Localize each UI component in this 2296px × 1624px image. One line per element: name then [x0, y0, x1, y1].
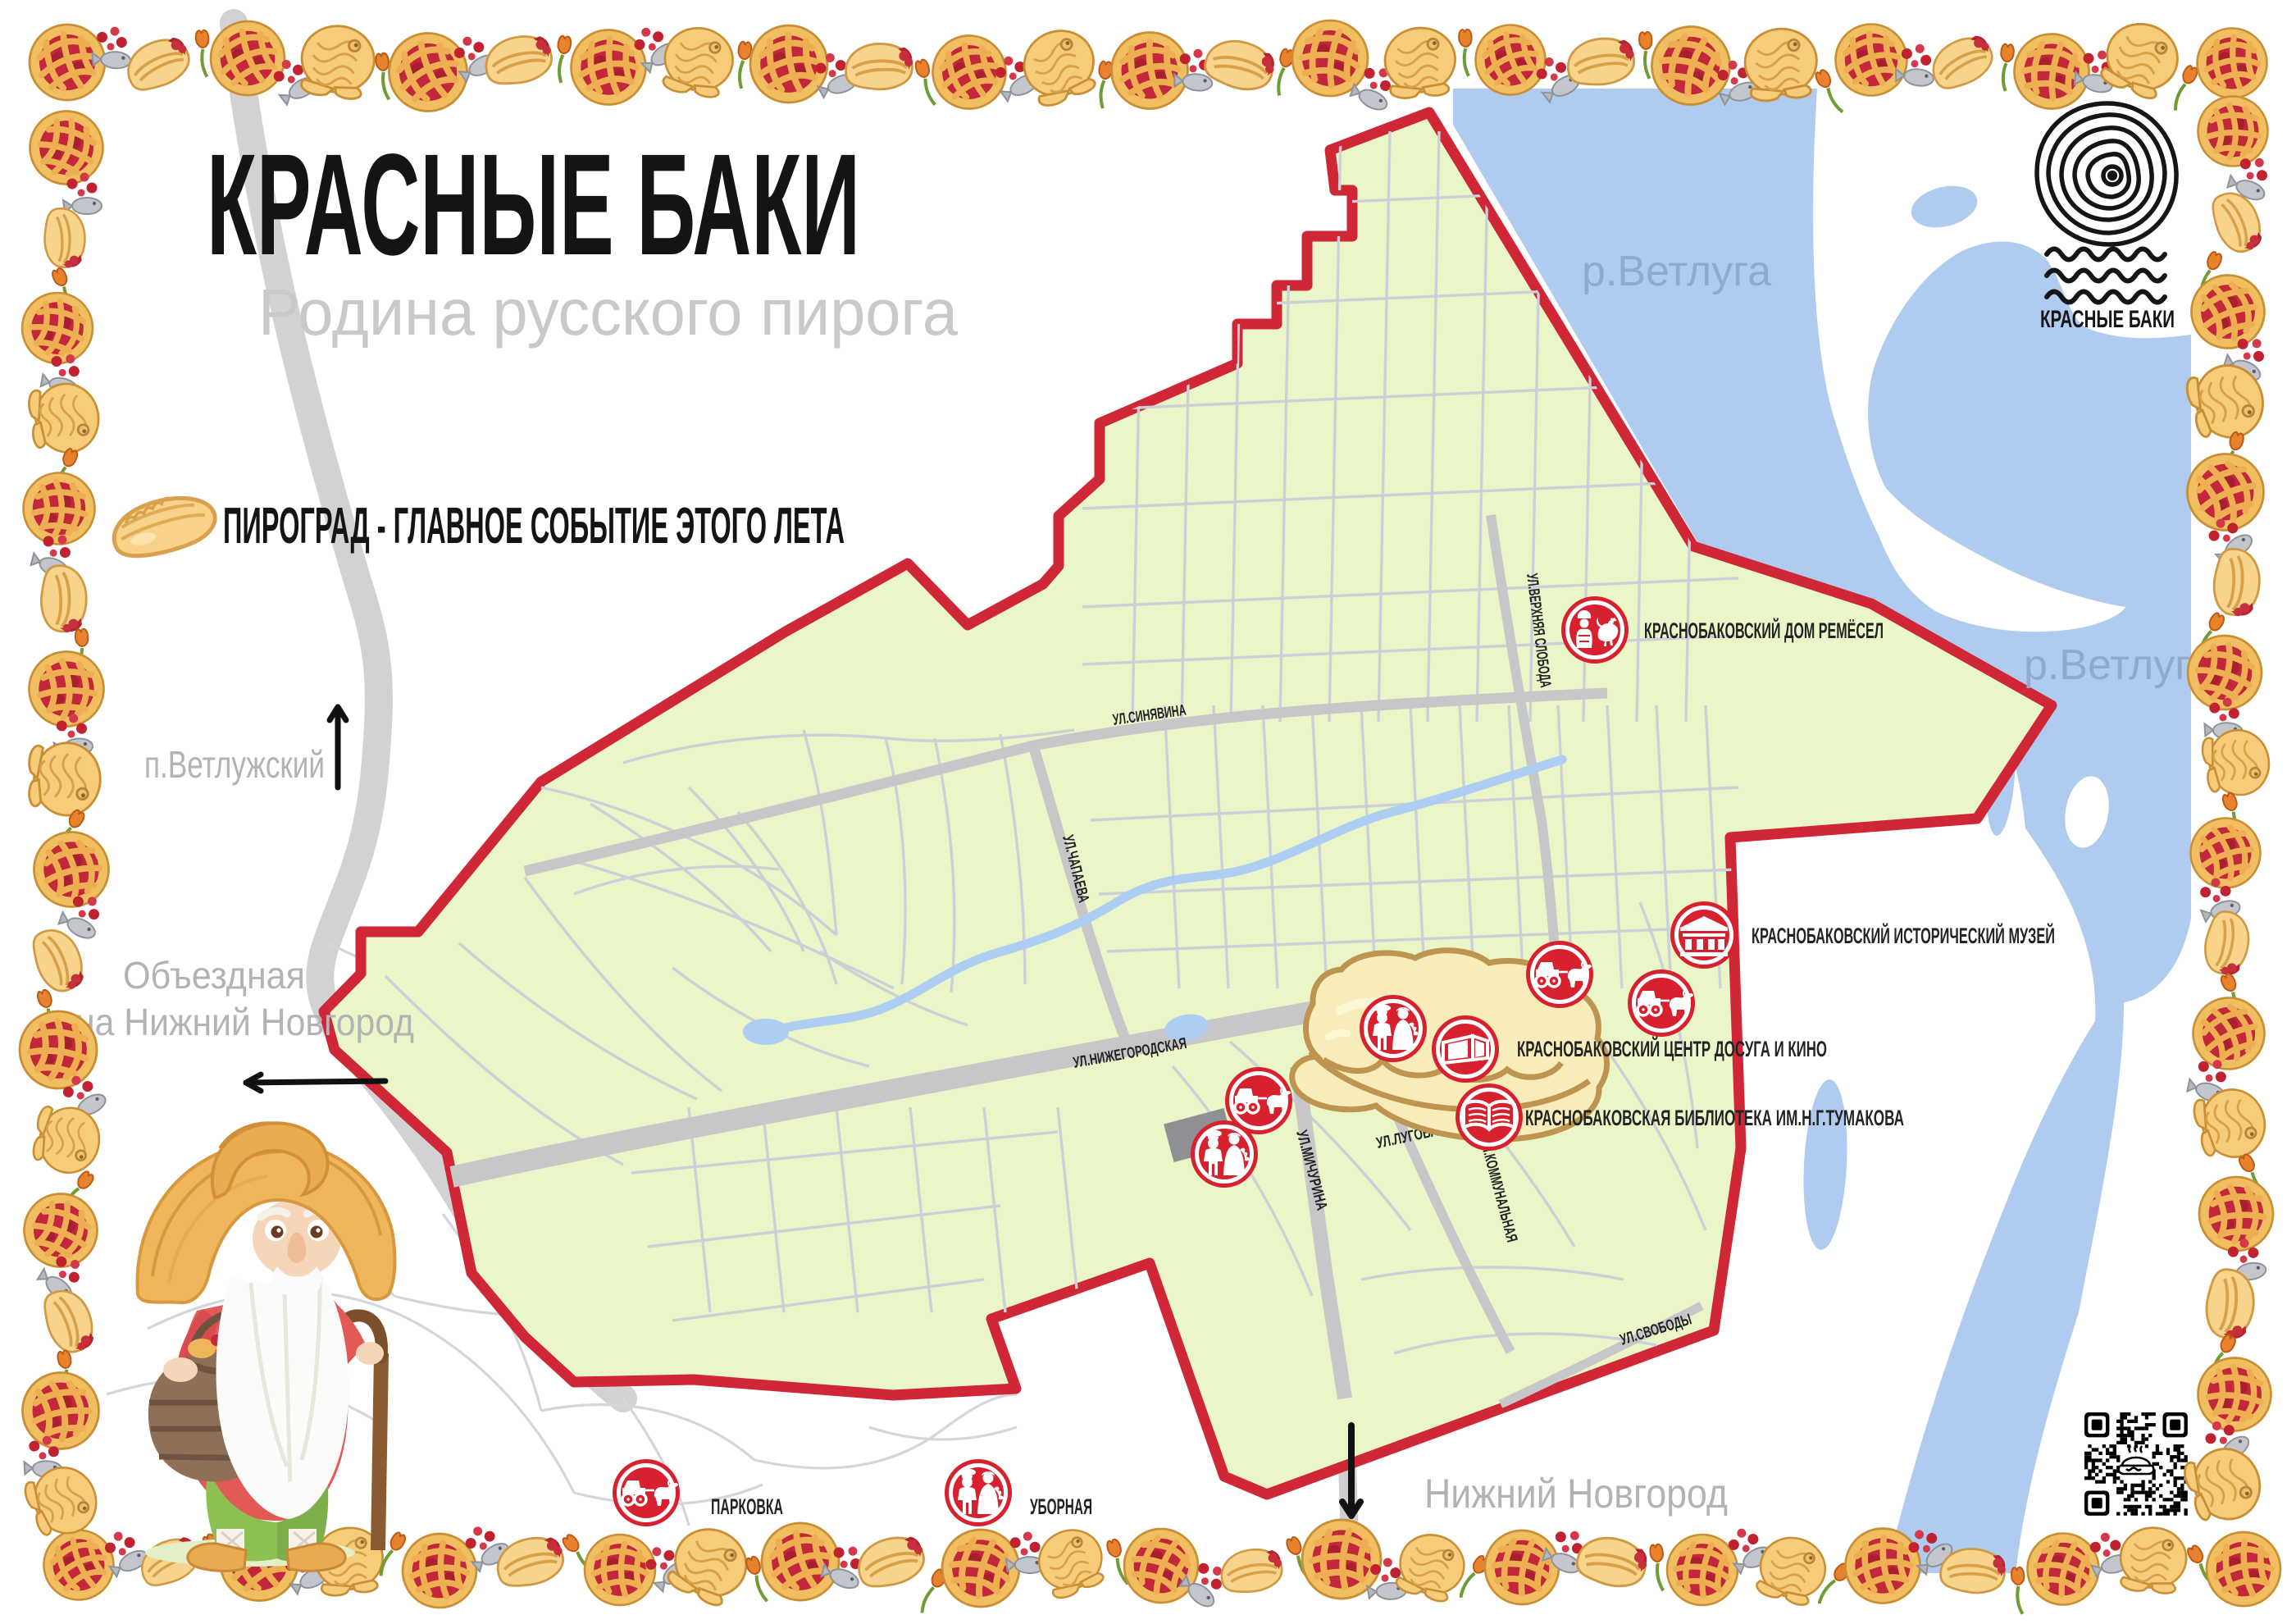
svg-text:КРАСНЫЕ БАКИ: КРАСНЫЕ БАКИ — [2040, 306, 2175, 333]
svg-text:КРАСНОБАКОВСКИЙ ДОМ РЕМЁСЕЛ: КРАСНОБАКОВСКИЙ ДОМ РЕМЁСЕЛ — [1644, 618, 1884, 643]
svg-text:КРАСНОБАКОВСКАЯ БИБЛИОТЕКА ИМ.: КРАСНОБАКОВСКАЯ БИБЛИОТЕКА ИМ.Н.Г.ТУМАКО… — [1525, 1106, 1904, 1130]
svg-text:КРАСНОБАКОВСКИЙ ИСТОРИЧЕСКИЙ М: КРАСНОБАКОВСКИЙ ИСТОРИЧЕСКИЙ МУЗЕЙ — [1752, 923, 2055, 948]
svg-text:Объездная: Объездная — [123, 954, 305, 997]
svg-text:УБОРНАЯ: УБОРНАЯ — [1030, 1494, 1092, 1519]
svg-text:Родина русского пирога: Родина русского пирога — [258, 276, 958, 349]
svg-text:КРАСНОБАКОВСКИЙ ЦЕНТР ДОСУГА И: КРАСНОБАКОВСКИЙ ЦЕНТР ДОСУГА И КИНО — [1517, 1036, 1827, 1061]
svg-text:ПАРКОВКА: ПАРКОВКА — [711, 1494, 783, 1519]
svg-text:р.Ветлуга: р.Ветлуга — [2024, 641, 2213, 689]
svg-text:Нижний Новгород: Нижний Новгород — [1424, 1471, 1728, 1517]
svg-text:на Нижний Новгород: на Нижний Новгород — [75, 1001, 414, 1043]
svg-text:ПИРОГРАД - ГЛАВНОЕ СОБЫТИЕ ЭТ: ПИРОГРАД - ГЛАВНОЕ СОБЫТИЕ ЭТОГО ЛЕТА — [223, 498, 845, 554]
svg-text:р.Ветлуга: р.Ветлуга — [1582, 248, 1771, 295]
svg-text:КРАСНЫЕ БАКИ: КРАСНЫЕ БАКИ — [207, 125, 860, 285]
svg-text:п.Ветлужский: п.Ветлужский — [144, 743, 325, 786]
